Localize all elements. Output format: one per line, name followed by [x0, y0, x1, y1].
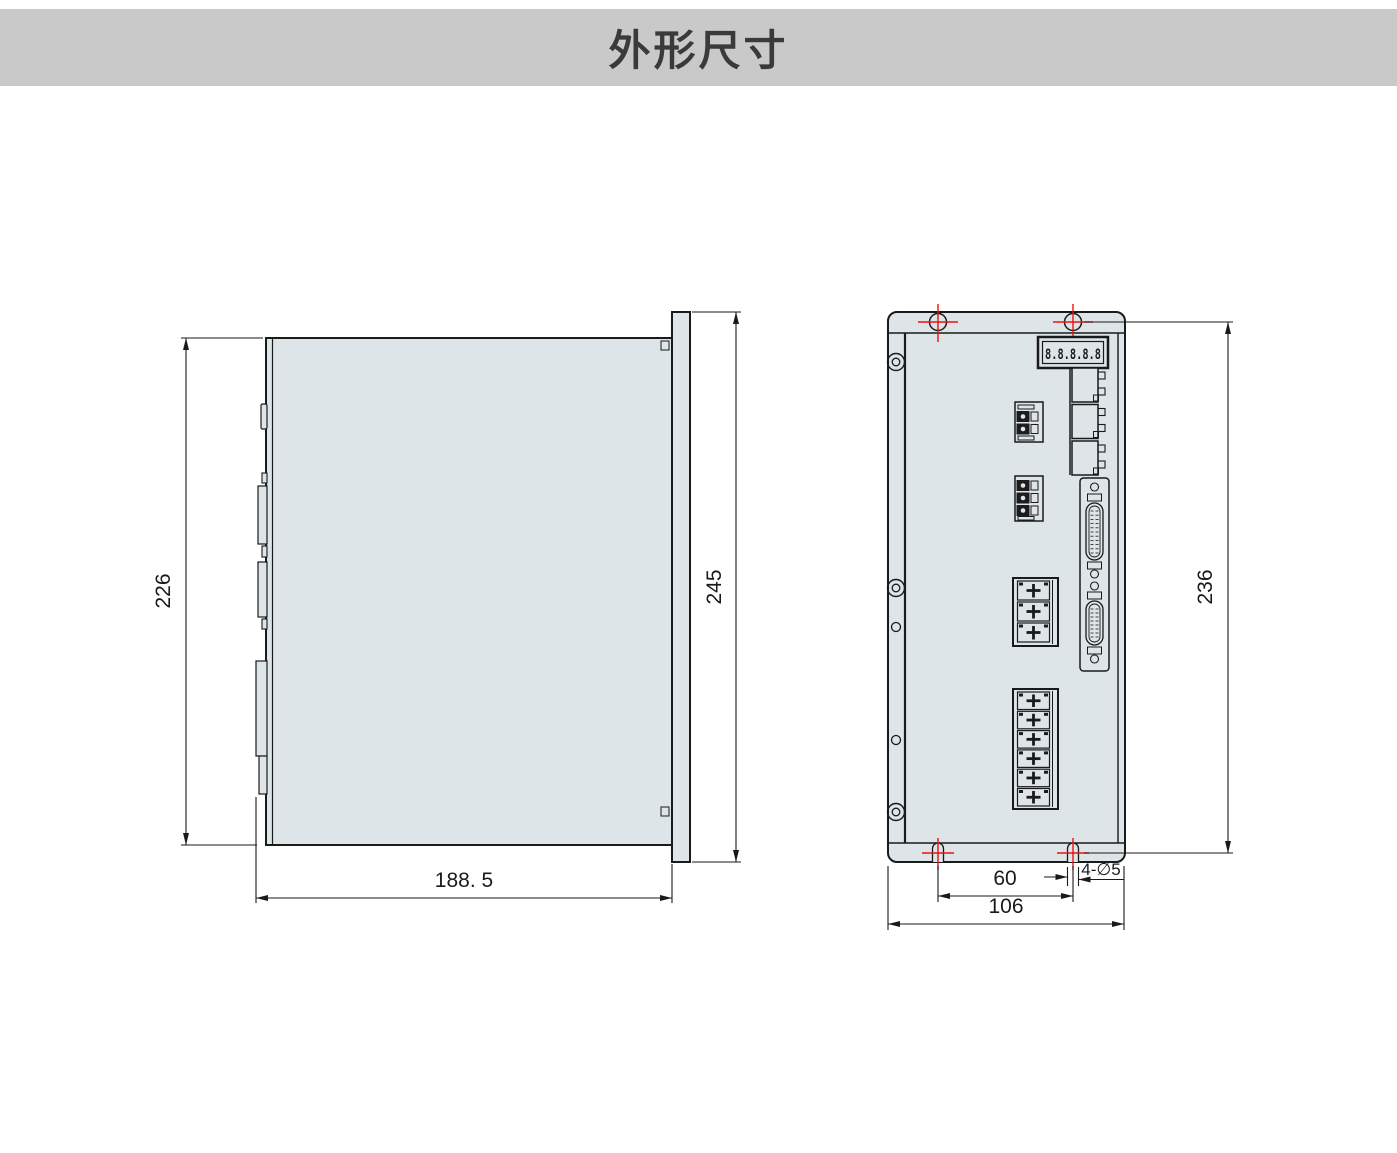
seven-segment-digits: 8.8.8.8.8 [1045, 347, 1101, 363]
dimension-flange-height: 245 [692, 312, 741, 862]
front-view-drawing: 8.8.8.8.8 [888, 304, 1234, 930]
connector-2pin [1015, 402, 1043, 442]
dim-236-label: 236 [1194, 569, 1217, 604]
side-view-drawing: 226 245 188. 5 [152, 312, 741, 903]
terminal-block-3pos [1013, 578, 1058, 646]
terminal-block-6pos [1013, 689, 1058, 809]
dim-106-label: 106 [988, 895, 1023, 918]
dim-60-label: 60 [993, 867, 1016, 890]
side-view-body [266, 338, 672, 845]
hole-diameter-callout: 4-∅5 [1044, 860, 1124, 886]
dim-hole-callout-label: 4-∅5 [1081, 860, 1120, 879]
technical-drawing-canvas: 226 245 188. 5 [0, 0, 1397, 1153]
dim-245-label: 245 [703, 569, 726, 604]
dim-188-label: 188. 5 [435, 869, 493, 892]
side-view-flange-plate [672, 312, 690, 862]
seven-segment-display: 8.8.8.8.8 [1038, 337, 1108, 368]
dimension-body-height: 226 [152, 338, 263, 845]
dim-226-label: 226 [152, 573, 175, 608]
connector-3pin [1015, 476, 1043, 521]
cn-io-connector-panel [1080, 478, 1109, 671]
